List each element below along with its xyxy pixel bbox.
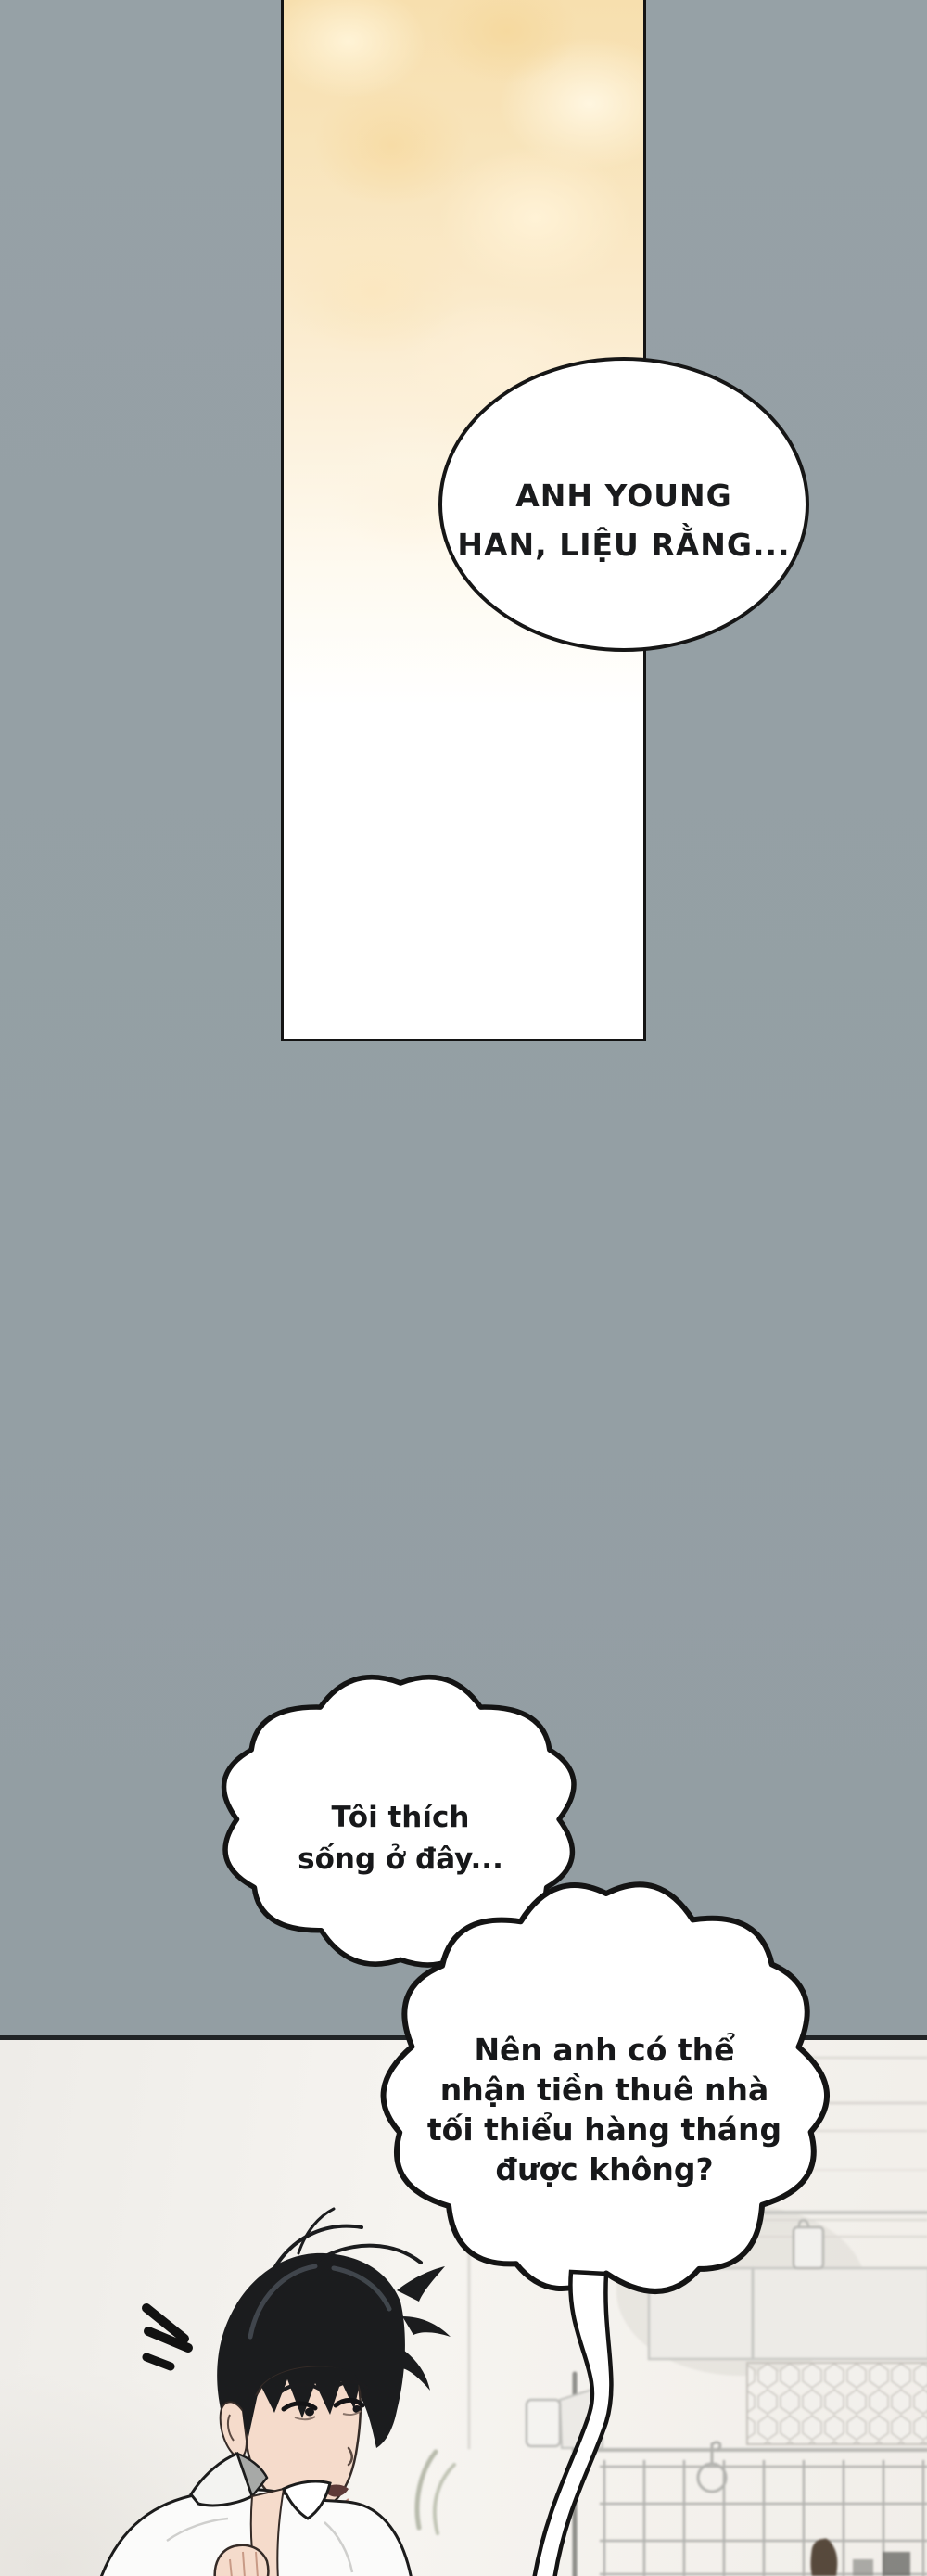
comic-page: ANH YOUNG HAN, LIỆU RẰNG... bbox=[0, 0, 927, 2576]
paper-towel-roll bbox=[527, 2400, 560, 2446]
emphasis-marks bbox=[146, 2308, 188, 2366]
bubble-line: nhận tiền thuê nhà bbox=[396, 2070, 813, 2110]
scene-artwork bbox=[0, 0, 927, 2576]
shirt bbox=[100, 2454, 412, 2576]
bubble-line: sống ở đây... bbox=[261, 1839, 540, 1881]
character-illustration bbox=[100, 2209, 451, 2576]
thought-cloud-large-text: Nên anh có thể nhận tiền thuê nhà tối th… bbox=[396, 2030, 813, 2189]
bubble-line: Tôi thích bbox=[261, 1797, 540, 1839]
bubble-line: Nên anh có thể bbox=[396, 2030, 813, 2070]
hanging-tag bbox=[794, 2220, 823, 2268]
bubble-line: tối thiểu hàng tháng bbox=[396, 2110, 813, 2149]
bubble-line: được không? bbox=[396, 2149, 813, 2189]
plant-leaf bbox=[435, 2465, 454, 2533]
wire-grid bbox=[601, 2461, 927, 2576]
dark-bottle bbox=[811, 2538, 838, 2576]
thought-cloud-small-text: Tôi thích sống ở đây... bbox=[261, 1797, 540, 1881]
